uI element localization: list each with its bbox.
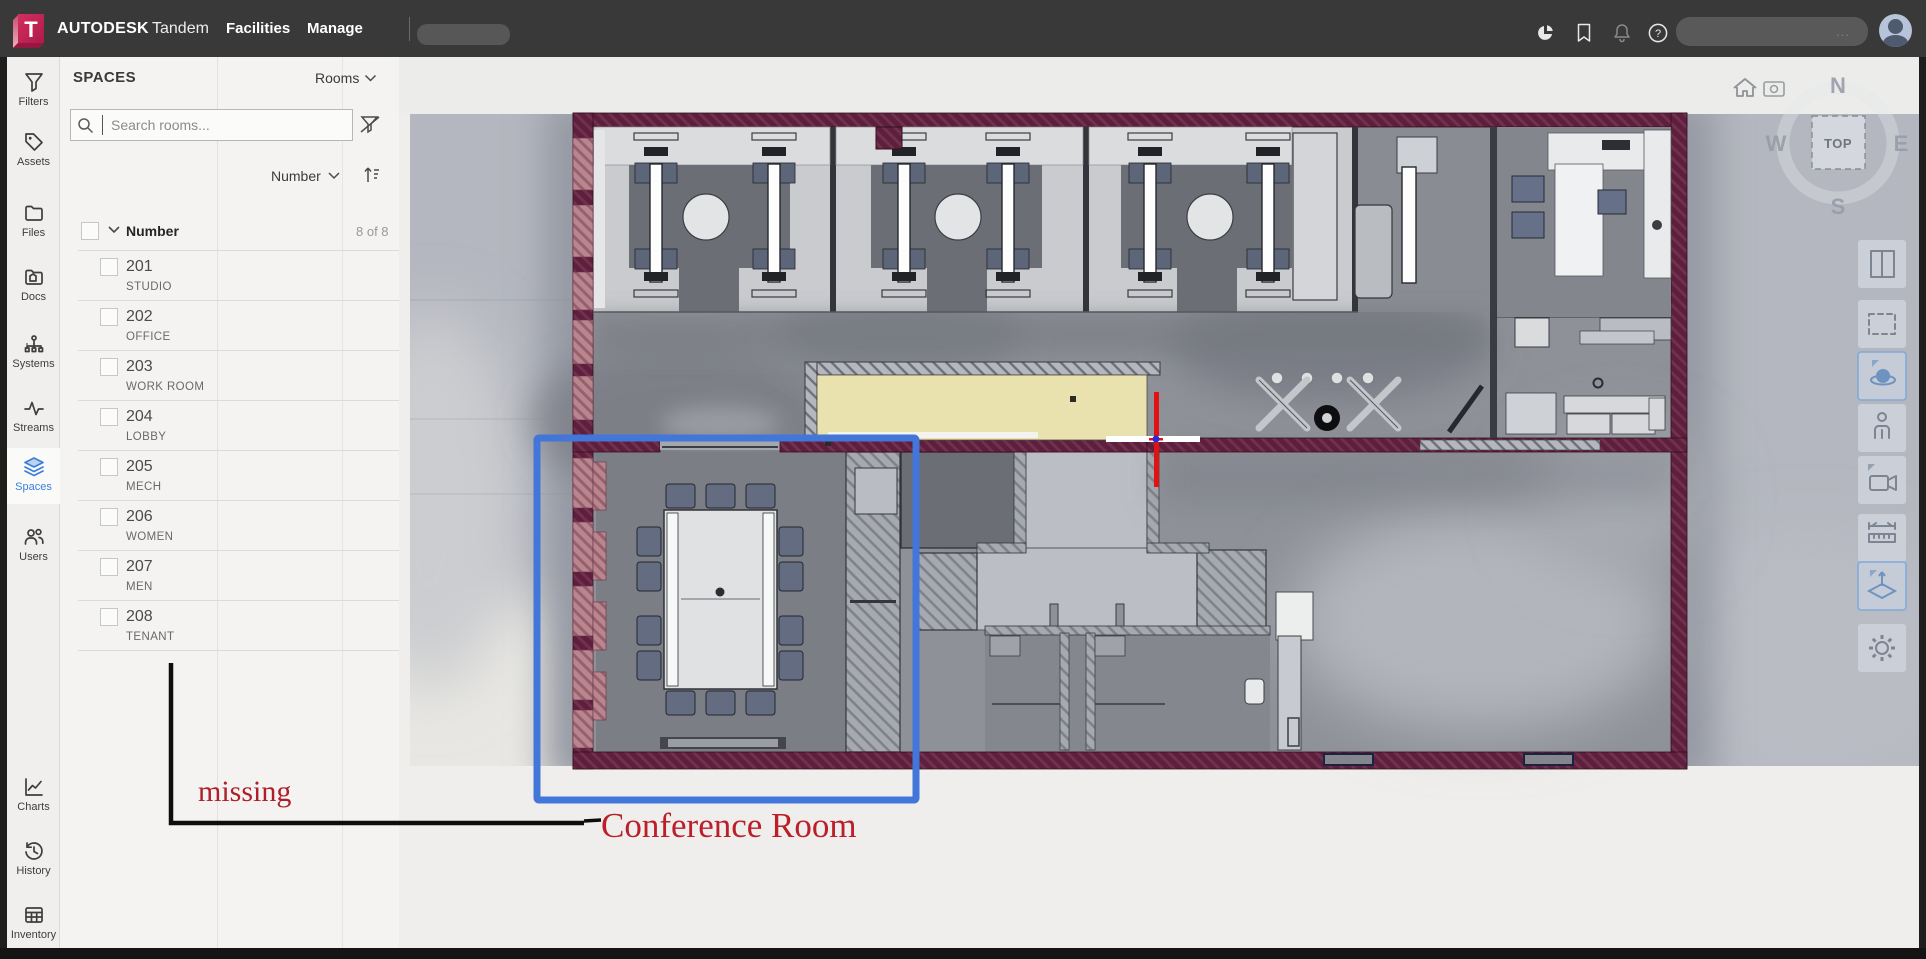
svg-text:S: S [1831, 194, 1846, 219]
svg-text:N: N [1830, 73, 1846, 98]
svg-text:missing: missing [198, 775, 291, 808]
svg-text:TOP: TOP [1824, 136, 1852, 151]
svg-text:W: W [1766, 131, 1787, 156]
svg-text:Conference Room: Conference Room [601, 806, 857, 845]
svg-text:E: E [1894, 131, 1909, 156]
